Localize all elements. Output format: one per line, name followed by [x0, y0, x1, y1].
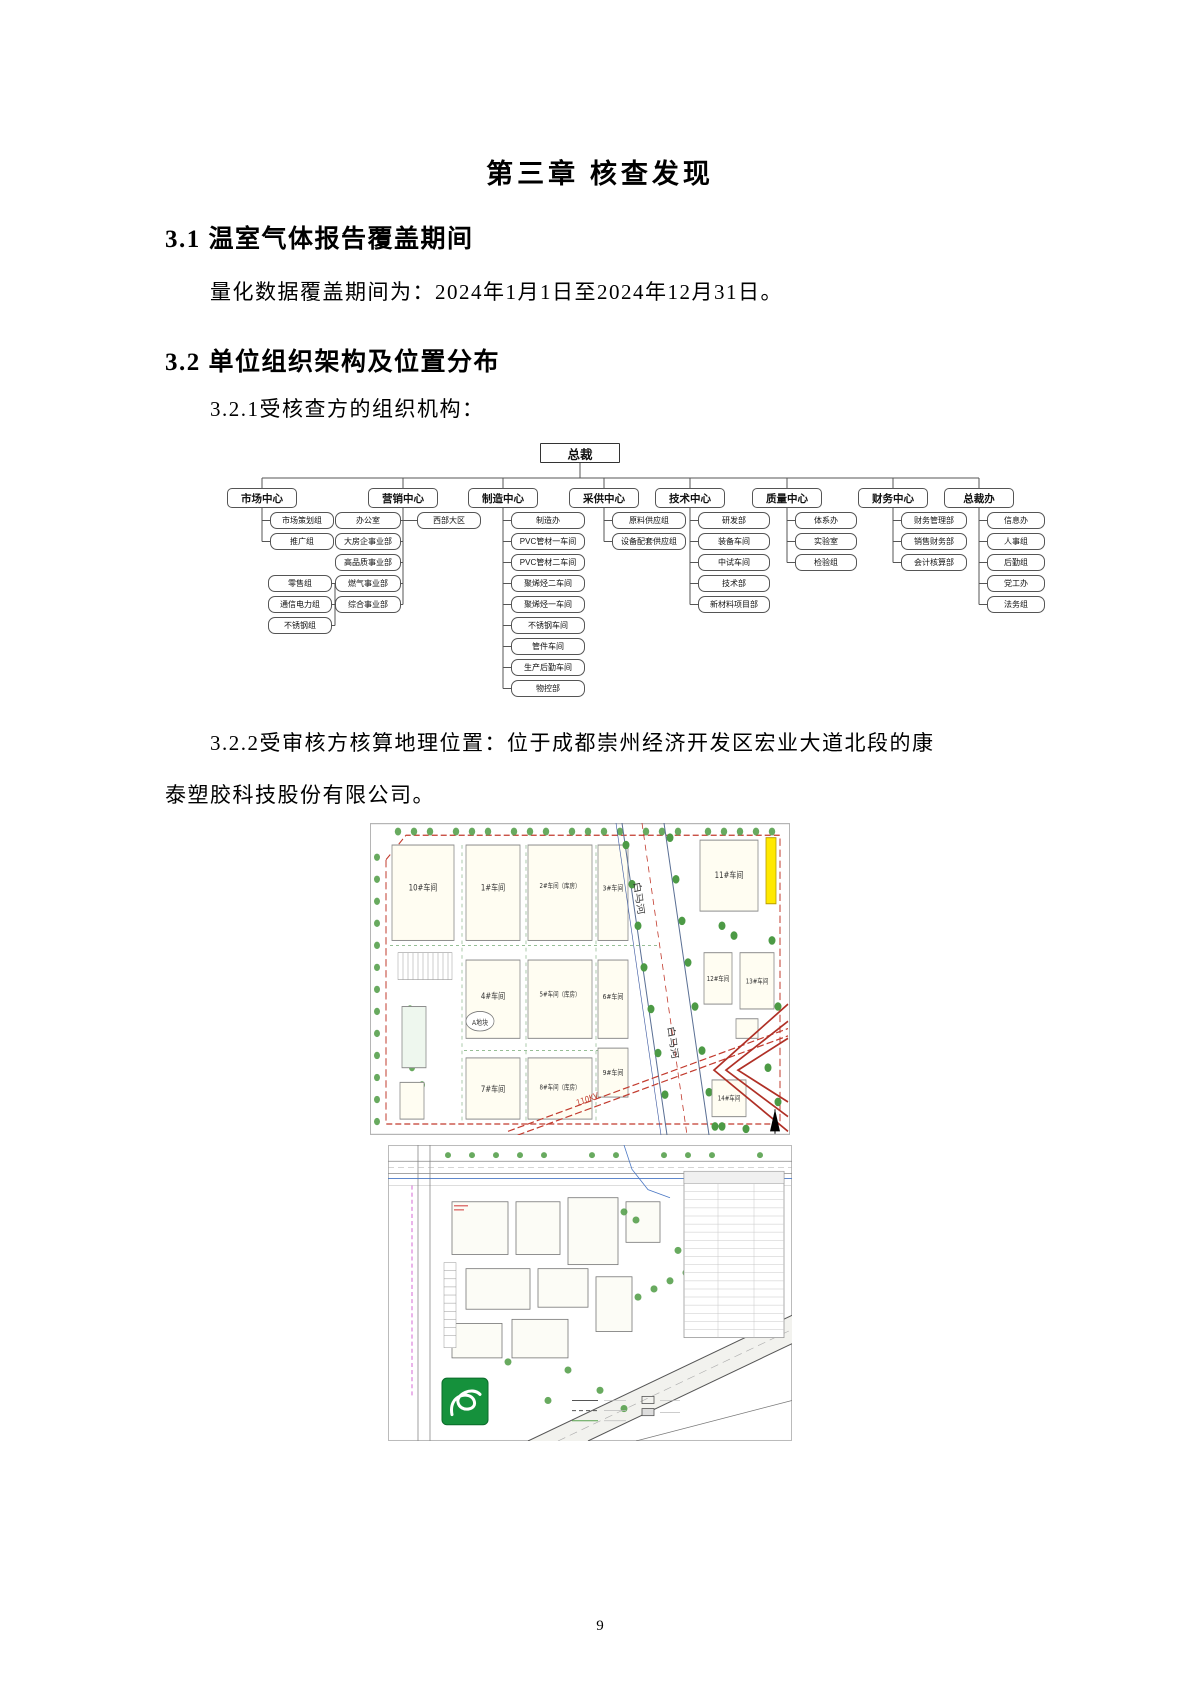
label-building-7: 7#车间 [481, 1083, 505, 1094]
org-dept-box: 不锈钢车间 [511, 617, 585, 634]
org-dept-box: 市场策划组 [270, 512, 334, 529]
org-dept-box: 西部大区 [417, 512, 481, 529]
highlighted-building [766, 838, 776, 904]
org-root-box: 总裁 [540, 443, 620, 463]
org-dept-box: 综合事业部 [335, 596, 401, 613]
section-3-2-2-line1: 3.2.2受审核方核算地理位置：位于成都崇州经济开发区宏业大道北段的康 [210, 727, 935, 757]
org-dept-box: 聚烯烃二车间 [511, 575, 585, 592]
org-dept-box: 装备车间 [698, 533, 770, 550]
org-center-box: 市场中心 [227, 488, 297, 508]
label-plot-a: A地块 [472, 1017, 488, 1027]
org-dept-box: 通信电力组 [268, 596, 332, 613]
label-building-12: 12#车间 [707, 974, 730, 983]
org-dept-box: 人事组 [987, 533, 1045, 550]
org-dept-box: 生产后勤车间 [511, 659, 585, 676]
org-dept-box: 会计核算部 [901, 554, 967, 571]
label-building-14: 14#车间 [718, 1094, 741, 1103]
label-building-13: 13#车间 [746, 977, 769, 986]
hatched-structure [398, 953, 452, 980]
org-dept-box: 推广组 [270, 533, 334, 550]
org-dept-box: 办公室 [335, 512, 401, 529]
org-center-box: 财务中心 [858, 488, 928, 508]
label-building-6: 6#车间 [603, 992, 624, 1002]
section-3-1-heading: 3.1 温室气体报告覆盖期间 [165, 219, 474, 255]
section-3-2-2-line2: 泰塑胶科技股份有限公司。 [165, 779, 435, 809]
org-dept-box: 检验组 [795, 554, 857, 571]
org-dept-box: 燃气事业部 [335, 575, 401, 592]
org-center-box: 总裁办 [944, 488, 1014, 508]
label-building-11: 11#车间 [715, 869, 744, 880]
org-center-box: 技术中心 [655, 488, 725, 508]
org-dept-box: 高品质事业部 [335, 554, 401, 571]
org-dept-box: 后勤组 [987, 554, 1045, 571]
org-dept-box: 物控部 [511, 680, 585, 697]
org-dept-box: 管件车间 [511, 638, 585, 655]
section-3-2-heading: 3.2 单位组织架构及位置分布 [165, 342, 500, 378]
org-dept-box: 设备配套供应组 [612, 533, 686, 550]
label-building-2: 2#车间（库房） [540, 881, 581, 890]
org-center-box: 采供中心 [569, 488, 639, 508]
hatched-strip [444, 1263, 456, 1348]
coverage-period-paragraph: 量化数据覆盖期间为：2024年1月1日至2024年12月31日。 [210, 276, 783, 306]
org-dept-box: 新材料项目部 [698, 596, 770, 613]
indicator-table [684, 1171, 784, 1337]
site-map-factory: 10#车间 1#车间 2#车间（库房） 3#车间 4#车间 5#车间（库房） 6… [370, 823, 790, 1135]
org-dept-box: 不锈钢组 [268, 617, 332, 634]
label-building-1: 1#车间 [481, 882, 505, 893]
org-center-box: 制造中心 [468, 488, 538, 508]
org-center-box: 营销中心 [368, 488, 438, 508]
org-dept-box: 技术部 [698, 575, 770, 592]
org-dept-box: 体系办 [795, 512, 857, 529]
org-dept-box: 制造办 [511, 512, 585, 529]
org-dept-box: 零售组 [268, 575, 332, 592]
org-dept-box: PVC管材一车间 [511, 533, 585, 550]
org-dept-box: 法务组 [987, 596, 1045, 613]
org-center-box: 质量中心 [752, 488, 822, 508]
org-chart: 总裁市场中心市场策划组推广组营销中心办公室大房企事业部高品质事业部燃气事业部综合… [180, 440, 1180, 712]
org-dept-box: 财务管理部 [901, 512, 967, 529]
org-dept-box: PVC管材二车间 [511, 554, 585, 571]
company-logo [442, 1378, 488, 1425]
document-page: 第三章 核查发现 3.1 温室气体报告覆盖期间 量化数据覆盖期间为：2024年1… [0, 0, 1200, 1696]
org-dept-box: 党工办 [987, 575, 1045, 592]
page-number: 9 [0, 1618, 1200, 1635]
label-building-5: 5#车间（库房） [540, 990, 581, 999]
org-dept-box: 信息办 [987, 512, 1045, 529]
org-dept-box: 中试车间 [698, 554, 770, 571]
org-dept-box: 原料供应组 [612, 512, 686, 529]
org-dept-box: 实验室 [795, 533, 857, 550]
label-building-9: 9#车间 [603, 1067, 624, 1077]
org-dept-box: 研发部 [698, 512, 770, 529]
label-building-8: 8#车间（库房） [540, 1083, 581, 1092]
site-map-plan [388, 1145, 792, 1441]
org-dept-box: 聚烯烃一车间 [511, 596, 585, 613]
label-building-10: 10#车间 [409, 882, 438, 893]
label-building-4: 4#车间 [481, 990, 505, 1001]
org-dept-box: 大房企事业部 [335, 533, 401, 550]
org-dept-box: 销售财务部 [901, 533, 967, 550]
label-building-3: 3#车间 [603, 883, 624, 893]
section-3-2-1-line: 3.2.1受核查方的组织机构： [210, 393, 485, 423]
chapter-title: 第三章 核查发现 [0, 152, 1200, 191]
